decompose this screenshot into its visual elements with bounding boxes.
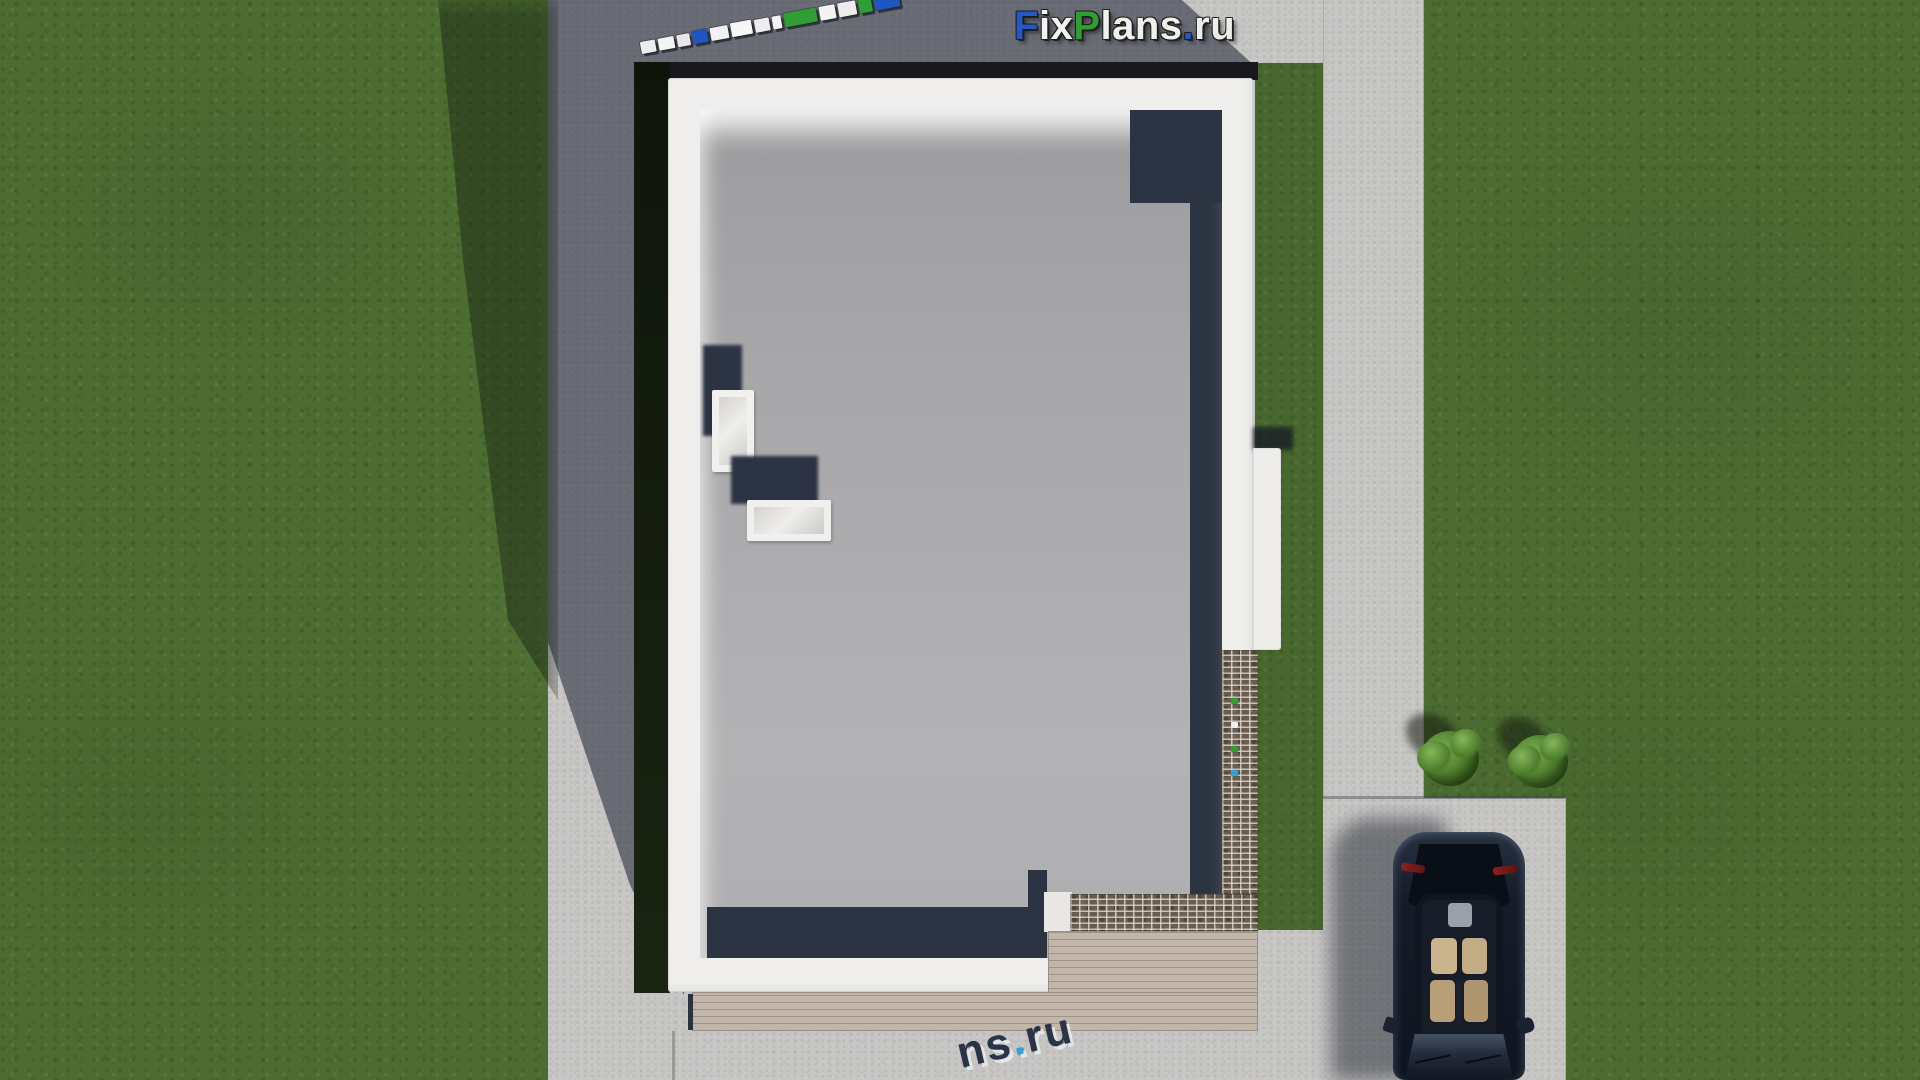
tape-block	[818, 4, 836, 21]
tape-block	[692, 29, 709, 45]
tape-block	[754, 17, 771, 33]
shrub-1	[1421, 731, 1479, 786]
deck-gap-shadow	[688, 994, 693, 1030]
site-plan-render: FixPlans.ru ns.ru	[0, 0, 1920, 1080]
garden-walkway	[1323, 0, 1424, 800]
pavement-joint-line	[672, 1031, 675, 1080]
car-rear-seat-left	[1431, 938, 1457, 974]
car-front-seat-left	[1430, 980, 1455, 1022]
roof-skylight-2	[747, 500, 831, 541]
logo-letter-group: lans	[1100, 4, 1182, 48]
logo-letter-group: P	[1073, 4, 1100, 48]
tape-block	[858, 0, 874, 14]
parapet-step-shadow	[1253, 427, 1293, 450]
fixplans-logo: FixPlans.ru	[1014, 4, 1235, 49]
logo-letter-group: .	[1183, 4, 1195, 48]
roof-shadow-bottom	[707, 907, 1047, 958]
logo-letter-group: F	[1014, 4, 1039, 48]
car-center-console	[1456, 980, 1463, 1024]
parapet-inner-corner	[1044, 892, 1072, 932]
shadowed-hedge-strip	[634, 62, 670, 993]
car-rear-armrest	[1448, 903, 1472, 927]
car-front-seat-right	[1464, 980, 1488, 1022]
logo-letter-group: ix	[1039, 4, 1073, 48]
brick-speck	[1231, 722, 1238, 728]
shrub-2	[1512, 735, 1568, 788]
car-rear-seat-right	[1462, 938, 1487, 974]
brick-speck	[1231, 746, 1238, 752]
parking-pad-edge	[1323, 796, 1565, 799]
parked-car	[1393, 822, 1525, 1080]
brick-wall-top-horizontal	[1070, 894, 1258, 931]
parapet-step-right	[1253, 448, 1281, 650]
logo-letter-group: ru	[1194, 4, 1235, 48]
tape-block	[676, 33, 691, 47]
brick-watermark-specks	[1231, 698, 1243, 788]
brick-speck	[1231, 698, 1238, 704]
brick-speck	[1231, 770, 1238, 776]
roof-shadow-top-right	[1130, 110, 1222, 203]
skylight-2-shadow	[731, 456, 818, 504]
tape-block	[771, 15, 782, 29]
